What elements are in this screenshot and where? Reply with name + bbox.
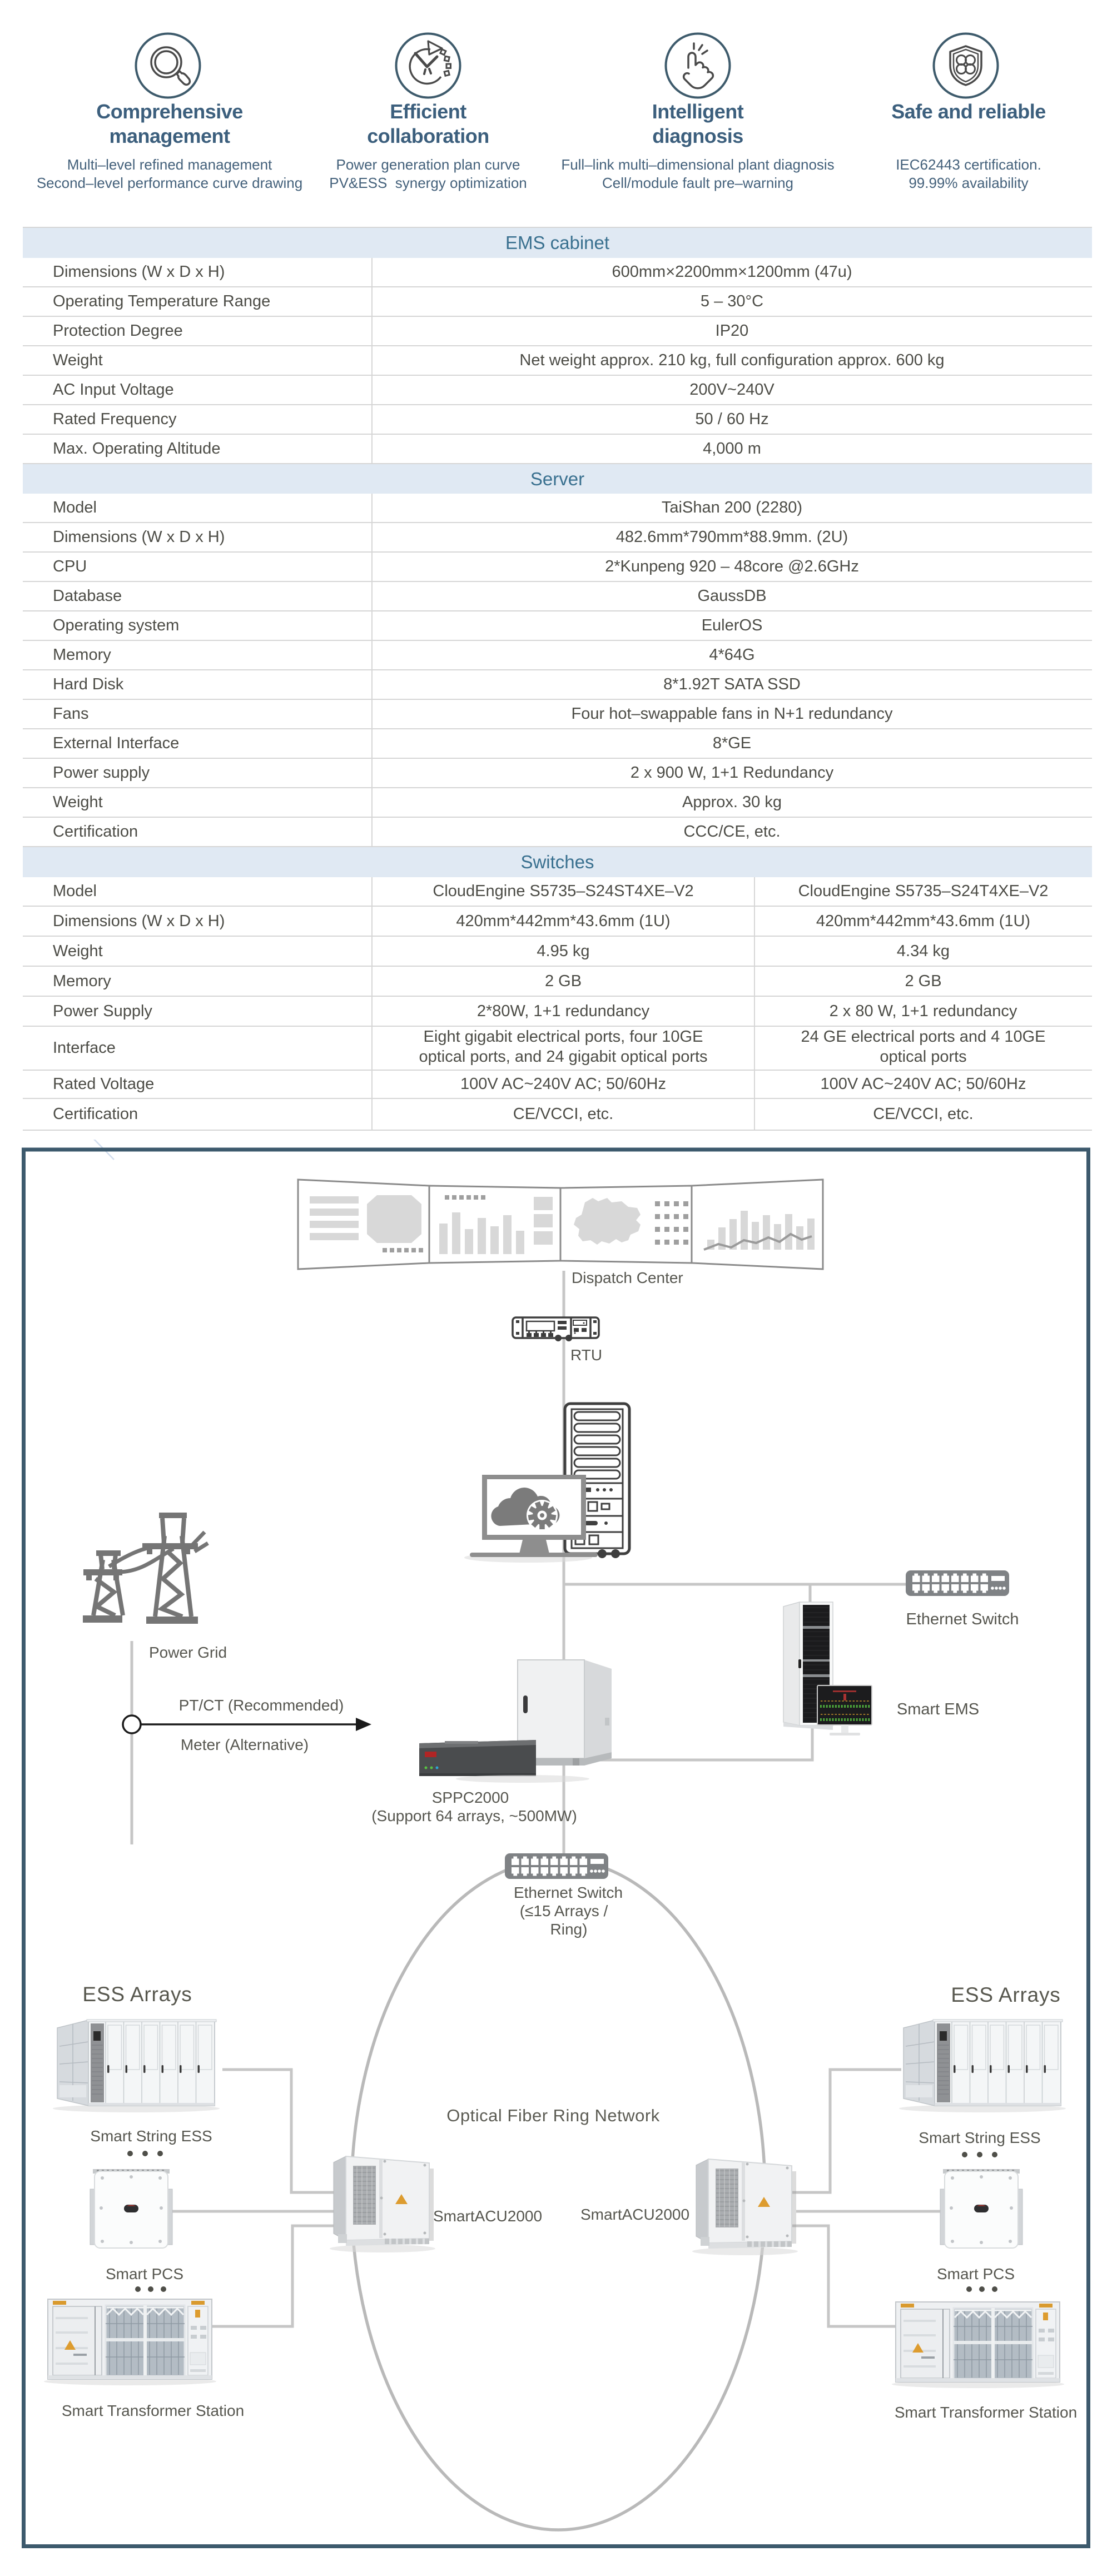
svg-text:(≤15 Arrays /: (≤15 Arrays / <box>520 1902 608 1919</box>
svg-text:Smart PCS: Smart PCS <box>937 2265 1015 2282</box>
svg-text:ESS Arrays: ESS Arrays <box>82 1983 192 2006</box>
svg-text:Power Grid: Power Grid <box>149 1644 227 1661</box>
svg-text:SmartACU2000: SmartACU2000 <box>580 2206 689 2223</box>
svg-text:Smart Transformer Station: Smart Transformer Station <box>895 2404 1077 2421</box>
svg-text:SmartACU2000: SmartACU2000 <box>433 2207 542 2225</box>
svg-text:SPPC2000: SPPC2000 <box>432 1789 509 1806</box>
svg-text:Meter (Alternative): Meter (Alternative) <box>181 1736 309 1753</box>
svg-text:Ethernet Switch: Ethernet Switch <box>514 1884 623 1901</box>
svg-text:RTU: RTU <box>570 1346 602 1364</box>
svg-text:PT/CT (Recommended): PT/CT (Recommended) <box>179 1697 344 1714</box>
svg-text:Optical Fiber Ring Network: Optical Fiber Ring Network <box>446 2106 659 2125</box>
svg-text:Ethernet Switch: Ethernet Switch <box>906 1610 1019 1628</box>
svg-text:Smart PCS: Smart PCS <box>106 2265 183 2282</box>
svg-text:(Support 64 arrays, ~500MW): (Support 64 arrays, ~500MW) <box>371 1807 577 1824</box>
svg-text:Ring): Ring) <box>550 1921 588 1938</box>
svg-text:ESS Arrays: ESS Arrays <box>951 1983 1060 2006</box>
svg-text:Smart Transformer Station: Smart Transformer Station <box>62 2402 244 2419</box>
svg-text:Smart String ESS: Smart String ESS <box>919 2129 1040 2146</box>
svg-text:Dispatch Center: Dispatch Center <box>572 1269 683 1286</box>
svg-text:Smart String ESS: Smart String ESS <box>90 2127 212 2145</box>
svg-text:Smart EMS: Smart EMS <box>897 1700 979 1718</box>
